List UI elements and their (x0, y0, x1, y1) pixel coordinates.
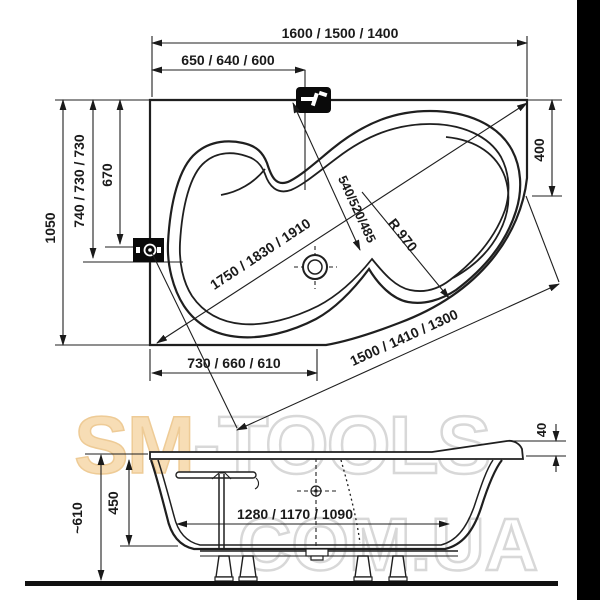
dim-right-edge: 400 (531, 138, 547, 162)
dim-overall-depth: 1050 (42, 212, 58, 243)
siphon-outlet (311, 556, 323, 560)
faucet-icon (296, 87, 331, 113)
leg (240, 556, 256, 577)
siphon (306, 549, 328, 556)
hidden-wall-line (341, 460, 360, 543)
seat-lip (255, 478, 259, 489)
side-view: 40 450 ~610 1280 / 1170 / 1090 (25, 423, 566, 586)
dim-drain-depth: 670 (99, 163, 115, 187)
dim-inner-depth: 450 (105, 491, 121, 515)
leg-foot (389, 577, 407, 581)
drawing-canvas: 1600 / 1500 / 1400 650 / 640 / 600 1050 … (0, 0, 600, 600)
leg (390, 556, 406, 577)
leg-foot (215, 577, 233, 581)
bathtub-technical-drawing: SM-TOOLS COM.UA (0, 0, 600, 600)
dim-bottom-length: 1280 / 1170 / 1090 (237, 506, 353, 522)
dim-overall-width: 1600 / 1500 / 1400 (282, 25, 399, 41)
floor-line (25, 581, 558, 586)
drain-hole-inner (308, 260, 322, 274)
plan-view: 1600 / 1500 / 1400 650 / 640 / 600 1050 … (42, 25, 562, 430)
ext-line-front-right (526, 196, 559, 282)
dim-left-depth: 740 / 730 / 730 (71, 134, 87, 228)
dim-faucet-offset: 650 / 640 / 600 (181, 52, 275, 68)
leg (355, 556, 371, 577)
leg (216, 556, 232, 577)
leg-foot (354, 577, 372, 581)
overflow-drain-icon (133, 238, 164, 262)
dim-bottom-left-width: 730 / 660 / 610 (187, 355, 281, 371)
dim-total-height: ~610 (69, 502, 85, 534)
right-border-strip (577, 0, 600, 600)
dim-rim-height: 40 (534, 423, 549, 437)
tub-rim-profile (150, 441, 523, 459)
leg-foot (239, 577, 257, 581)
drain-mark-center (314, 489, 318, 493)
